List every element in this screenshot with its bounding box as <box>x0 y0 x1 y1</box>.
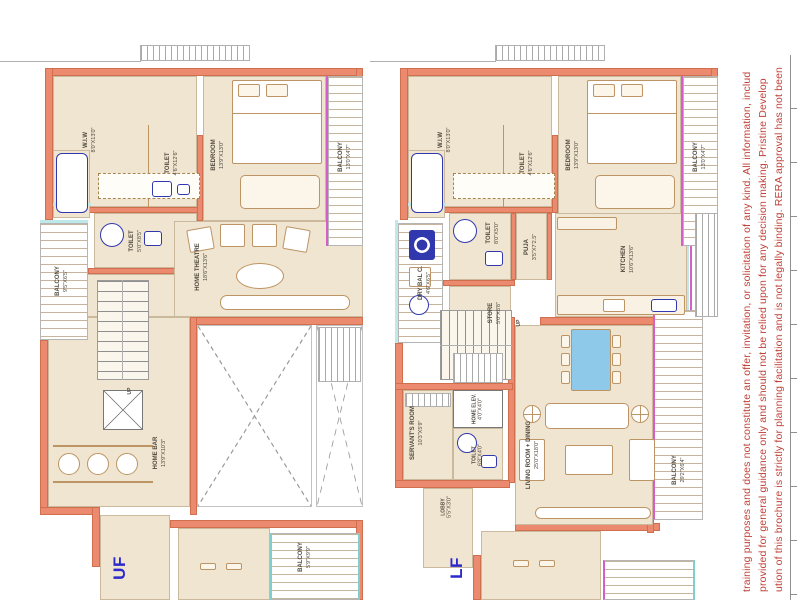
dining-chair-icon <box>561 335 570 348</box>
room-label-toilet-b: TOILET5'0"X8'5" <box>129 230 143 252</box>
blanket-line <box>232 113 322 114</box>
room-label-balcony-top: BALCONY13'0"X4'7" <box>338 142 352 172</box>
washing-machine-icon <box>409 230 435 260</box>
wall <box>40 507 100 515</box>
stairs-rail <box>122 280 123 380</box>
sink-icon <box>651 299 677 312</box>
armchair-icon <box>629 439 655 481</box>
bathtub-icon <box>411 153 443 213</box>
door-icon <box>539 560 555 567</box>
stairs-up-label: UP <box>127 388 133 395</box>
ladder-icon <box>318 327 361 382</box>
door-icon <box>200 563 216 570</box>
dining-chair-icon <box>612 335 621 348</box>
room-label-kitchen: KITCHEN10'6"X13'6" <box>621 245 635 273</box>
wall <box>92 507 100 567</box>
ceiling-fan-icon <box>631 405 649 423</box>
room-label-toilet-b: TOILET8'0"X5'0" <box>486 222 500 244</box>
dining-chair-icon <box>561 353 570 366</box>
elevator-shaft <box>453 353 503 383</box>
room-label-home-bar: HOME BAR13'9"X10'3" <box>153 437 167 470</box>
dining-chair-icon <box>612 353 621 366</box>
room-label-store: STORE5'0"X8'8" <box>488 302 502 324</box>
room-label-home-elev: HOME ELEV.4'0"X4'0" <box>471 394 484 424</box>
bathtub-icon <box>56 153 88 213</box>
recliner-icon <box>282 226 311 253</box>
bar-stool-icon <box>87 453 109 475</box>
room-label-toilet-c: TOILET6'8"X4'0" <box>471 444 484 466</box>
wall <box>45 68 363 76</box>
closet-icon <box>405 393 451 407</box>
bar-counter <box>53 445 153 447</box>
disclaimer-line-2: provided for general guidance only and s… <box>757 78 769 592</box>
wall <box>400 68 718 76</box>
tv-console-icon <box>220 295 350 310</box>
door-icon <box>226 563 242 570</box>
coffee-table-icon <box>565 445 613 475</box>
balcony-right <box>653 310 703 520</box>
wall <box>170 520 363 528</box>
pillow-icon <box>238 84 260 97</box>
dining-chair-icon <box>612 371 621 384</box>
kitchen-counter <box>557 217 617 230</box>
room-label-wiw: W.I.W8'0"X13'0" <box>83 128 97 153</box>
dining-chair-icon <box>561 371 570 384</box>
wall <box>190 317 363 325</box>
stairs-rail <box>440 345 512 346</box>
wall <box>395 383 513 390</box>
floor-label-uf: UF <box>110 556 130 580</box>
room-label-home-theatre: HOME THEATRE18'6"X13'6" <box>195 243 209 291</box>
room-label-servants: SERVANT'S ROOM10'3"X5'9" <box>410 406 424 460</box>
room-bottom-mid <box>178 528 270 600</box>
bar-counter <box>53 481 153 483</box>
pillow-icon <box>266 84 288 97</box>
floor-label-lf: LF <box>447 557 467 579</box>
dining-table-icon <box>571 329 611 391</box>
shower-icon <box>100 223 124 247</box>
wall <box>395 343 403 483</box>
wardrobe-icon <box>453 173 555 199</box>
tv-console-icon <box>535 507 651 519</box>
hob-icon <box>603 299 625 312</box>
sofa-icon <box>595 175 675 209</box>
ruler <box>790 55 797 600</box>
room-label-bedroom: BEDROOM13'9"X13'0" <box>211 139 225 170</box>
wall <box>540 317 660 325</box>
room-label-wiw: W.I.W8'0"X13'0" <box>438 128 452 153</box>
planter-icon <box>140 45 250 61</box>
door-icon <box>513 560 529 567</box>
table-icon <box>236 263 284 289</box>
room-label-toilet-a: TOILET4'6"X12'6" <box>520 151 534 176</box>
blanket-line <box>587 113 677 114</box>
plan-upper-floor: W.I.W8'0"X13'0" TOILET4'6"X12'6" BEDROOM… <box>40 55 373 600</box>
sofa-icon <box>545 403 629 429</box>
planter-icon <box>495 45 605 61</box>
room-label-balcony-bottom: BALCONY5'9"X9'9" <box>298 542 312 572</box>
wall <box>190 317 197 515</box>
wall <box>547 213 552 280</box>
wall <box>400 68 408 220</box>
room-label-balcony-right: BALCONY29'2"X6'4" <box>672 455 686 485</box>
pillow-icon <box>621 84 643 97</box>
void-cutout <box>197 325 312 507</box>
floorplan-sheet: W.I.W8'0"X13'0" TOILET4'6"X12'6" BEDROOM… <box>0 0 800 600</box>
toilet-icon <box>485 251 503 266</box>
stairs-icon <box>97 280 149 380</box>
room-label-lobby: LOBBY5'5"X3'0" <box>440 496 453 518</box>
room-label-balcony-top: BALCONY13'0"X4'7" <box>693 142 707 172</box>
wall <box>473 555 481 600</box>
shower-icon <box>453 219 477 243</box>
bar-stool-icon <box>58 453 80 475</box>
ladder-icon <box>695 213 718 317</box>
plan-lower-floor: W.I.W8'0"X13'0" TOILET4'6"X12'6" BEDROOM… <box>395 55 728 600</box>
stairs-up-label: UP <box>516 320 522 327</box>
washbasin-icon <box>177 184 190 195</box>
wall <box>395 480 510 488</box>
room-label-puja: PUJA3'5"X7'2.5" <box>524 234 538 261</box>
toilet-icon <box>152 181 172 197</box>
room-label-balcony-left: BALCONY9'5"X6'5" <box>55 266 69 296</box>
recliner-icon <box>252 224 277 247</box>
wall <box>40 340 48 510</box>
balcony-bottom <box>270 533 360 600</box>
room-label-bedroom: BEDROOM13'9"X13'0" <box>566 139 580 170</box>
recliner-icon <box>220 224 245 247</box>
disclaimer-line-1: training purposes and does not constitut… <box>741 72 753 592</box>
disclaimer-line-3: ution of this brochure is strictly for p… <box>773 67 785 592</box>
room-label-living-dining: LIVING ROOM + DINING25'0"X18'0" <box>526 421 540 489</box>
bar-stool-icon <box>116 453 138 475</box>
wall <box>45 68 53 220</box>
elevator-icon <box>103 390 143 430</box>
room-label-dry-bal: DRY BAL C.4'6"X6'5" <box>418 266 432 300</box>
toilet-icon <box>144 231 162 246</box>
balcony-bottom-partial <box>603 560 695 600</box>
pillow-icon <box>593 84 615 97</box>
sofa-icon <box>240 175 320 209</box>
room-label-toilet-a: TOILET4'6"X12'6" <box>165 151 179 176</box>
